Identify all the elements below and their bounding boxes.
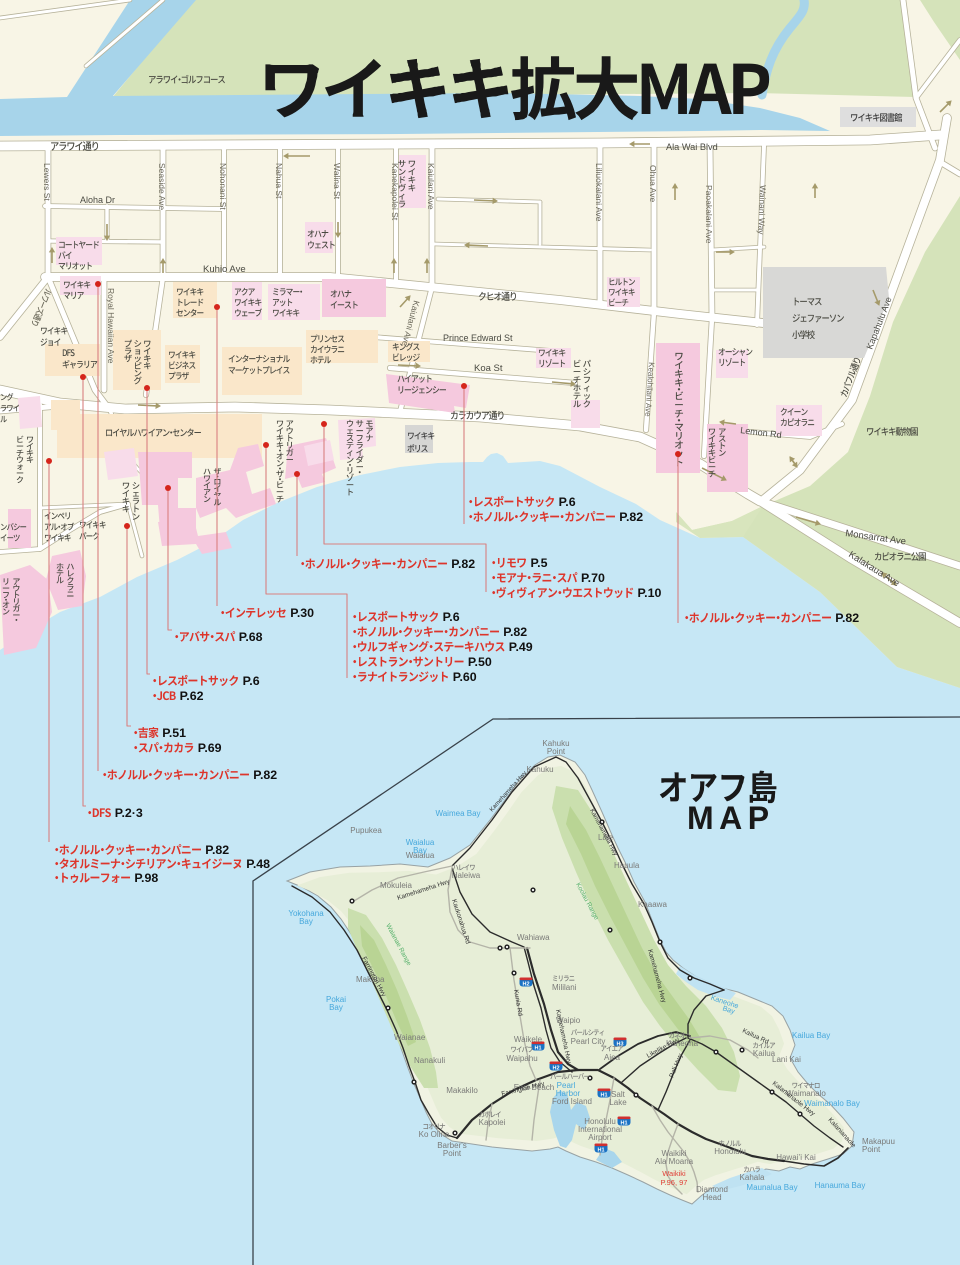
svg-text:P.10: P.10 [638, 586, 662, 600]
svg-text:P.82: P.82 [253, 768, 277, 782]
svg-text:Waikele: Waikele [514, 1035, 543, 1044]
svg-text:Aiea: Aiea [604, 1053, 621, 1062]
svg-text:P.82: P.82 [451, 557, 475, 571]
svg-text:Lani Kai: Lani Kai [772, 1055, 801, 1064]
svg-text:Kaaawa: Kaaawa [638, 900, 667, 909]
svg-text:Liliuokalani Ave: Liliuokalani Ave [594, 163, 604, 222]
svg-text:Bay: Bay [299, 917, 313, 926]
svg-text:P.30: P.30 [290, 606, 314, 620]
svg-text:Ford Island: Ford Island [552, 1097, 592, 1106]
svg-text:Point: Point [547, 747, 566, 756]
svg-text:Royal Hawaiian Ave: Royal Hawaiian Ave [106, 288, 116, 364]
svg-text:Head: Head [702, 1193, 721, 1202]
svg-text:P.82: P.82 [205, 843, 229, 857]
svg-text:P.6: P.6 [443, 610, 460, 624]
svg-text:Aloha Dr: Aloha Dr [80, 195, 115, 205]
svg-text:P.96, 97: P.96, 97 [661, 1178, 688, 1187]
svg-text:Nahua St: Nahua St [274, 163, 284, 199]
svg-text:Kanekapolei St: Kanekapolei St [390, 163, 400, 221]
svg-text:H1: H1 [600, 1092, 607, 1098]
svg-text:Kaiulani Ave: Kaiulani Ave [426, 163, 436, 210]
svg-text:P.51: P.51 [162, 726, 186, 740]
svg-text:P.60: P.60 [453, 670, 477, 684]
svg-text:Waimanalo Bay: Waimanalo Bay [804, 1099, 860, 1108]
svg-text:Seaside Ave: Seaside Ave [157, 163, 167, 210]
svg-text:Kahuku: Kahuku [526, 765, 553, 774]
svg-text:Koa St: Koa St [474, 363, 503, 374]
svg-text:Mokuleia: Mokuleia [380, 881, 413, 890]
svg-text:Wainani Way: Wainani Way [756, 185, 768, 236]
svg-text:Hauula: Hauula [614, 861, 640, 870]
svg-text:P.69: P.69 [198, 741, 222, 755]
svg-text:P.48: P.48 [246, 857, 270, 871]
svg-text:Bay: Bay [329, 1003, 343, 1012]
svg-text:H2: H2 [522, 981, 529, 987]
svg-text:Makakilo: Makakilo [446, 1086, 478, 1095]
svg-text:MAP: MAP [687, 800, 775, 836]
svg-text:Waianae: Waianae [394, 1033, 426, 1042]
svg-text:P.2·3: P.2·3 [115, 806, 143, 820]
svg-text:Lake: Lake [609, 1098, 627, 1107]
svg-text:P.49: P.49 [509, 640, 533, 654]
svg-text:Hawai’i Kai: Hawai’i Kai [776, 1153, 816, 1162]
svg-text:Kapolei: Kapolei [479, 1118, 506, 1127]
svg-text:Ohua Ave: Ohua Ave [648, 165, 658, 202]
svg-text:Ala Wai Blvd: Ala Wai Blvd [666, 142, 718, 152]
svg-text:Walina St: Walina St [332, 163, 342, 200]
svg-text:Wahiawa: Wahiawa [517, 933, 550, 942]
svg-text:Nanakuli: Nanakuli [414, 1056, 445, 1065]
svg-text:Waimea Bay: Waimea Bay [435, 809, 480, 818]
svg-text:Honolulu: Honolulu [714, 1147, 746, 1156]
svg-text:Pupukea: Pupukea [350, 826, 382, 835]
svg-text:Kahala: Kahala [740, 1173, 765, 1182]
svg-text:P.6: P.6 [243, 674, 260, 688]
svg-text:Paoakalani Ave: Paoakalani Ave [704, 185, 714, 244]
svg-text:Bay: Bay [413, 846, 427, 855]
svg-text:P.82: P.82 [835, 611, 859, 625]
svg-text:H1: H1 [534, 1045, 541, 1051]
svg-text:H1: H1 [597, 1147, 604, 1153]
svg-text:Kuhio Ave: Kuhio Ave [203, 264, 246, 275]
svg-text:H2: H2 [552, 1065, 559, 1071]
svg-text:Pearl City: Pearl City [571, 1037, 606, 1046]
svg-text:P.82: P.82 [503, 625, 527, 639]
svg-text:Nohonani St: Nohonani St [218, 163, 228, 210]
svg-text:Maunalua Bay: Maunalua Bay [746, 1183, 797, 1192]
svg-text:Waikiki: Waikiki [662, 1169, 686, 1178]
svg-text:Point: Point [862, 1145, 881, 1154]
svg-text:P.82: P.82 [619, 510, 643, 524]
svg-text:P.50: P.50 [468, 655, 492, 669]
svg-text:Hanauma Bay: Hanauma Bay [815, 1181, 866, 1190]
svg-text:Airport: Airport [588, 1133, 612, 1142]
svg-text:P.68: P.68 [239, 630, 263, 644]
svg-text:P.5: P.5 [531, 556, 548, 570]
svg-text:Prince Edward St: Prince Edward St [443, 333, 513, 343]
svg-text:Point: Point [443, 1149, 462, 1158]
svg-text:Ala Moana: Ala Moana [655, 1157, 694, 1166]
svg-text:Haleiwa: Haleiwa [452, 871, 481, 880]
svg-text:Kailua Bay: Kailua Bay [792, 1031, 830, 1040]
svg-text:Lewers St: Lewers St [42, 163, 52, 201]
svg-text:P.62: P.62 [180, 689, 204, 703]
svg-text:P.70: P.70 [581, 571, 605, 585]
svg-text:Ko Olina: Ko Olina [419, 1130, 450, 1139]
svg-text:Mililani: Mililani [552, 983, 577, 992]
svg-text:Waipahu: Waipahu [506, 1054, 537, 1063]
svg-text:P.98: P.98 [134, 871, 158, 885]
svg-text:P.6: P.6 [559, 495, 576, 509]
